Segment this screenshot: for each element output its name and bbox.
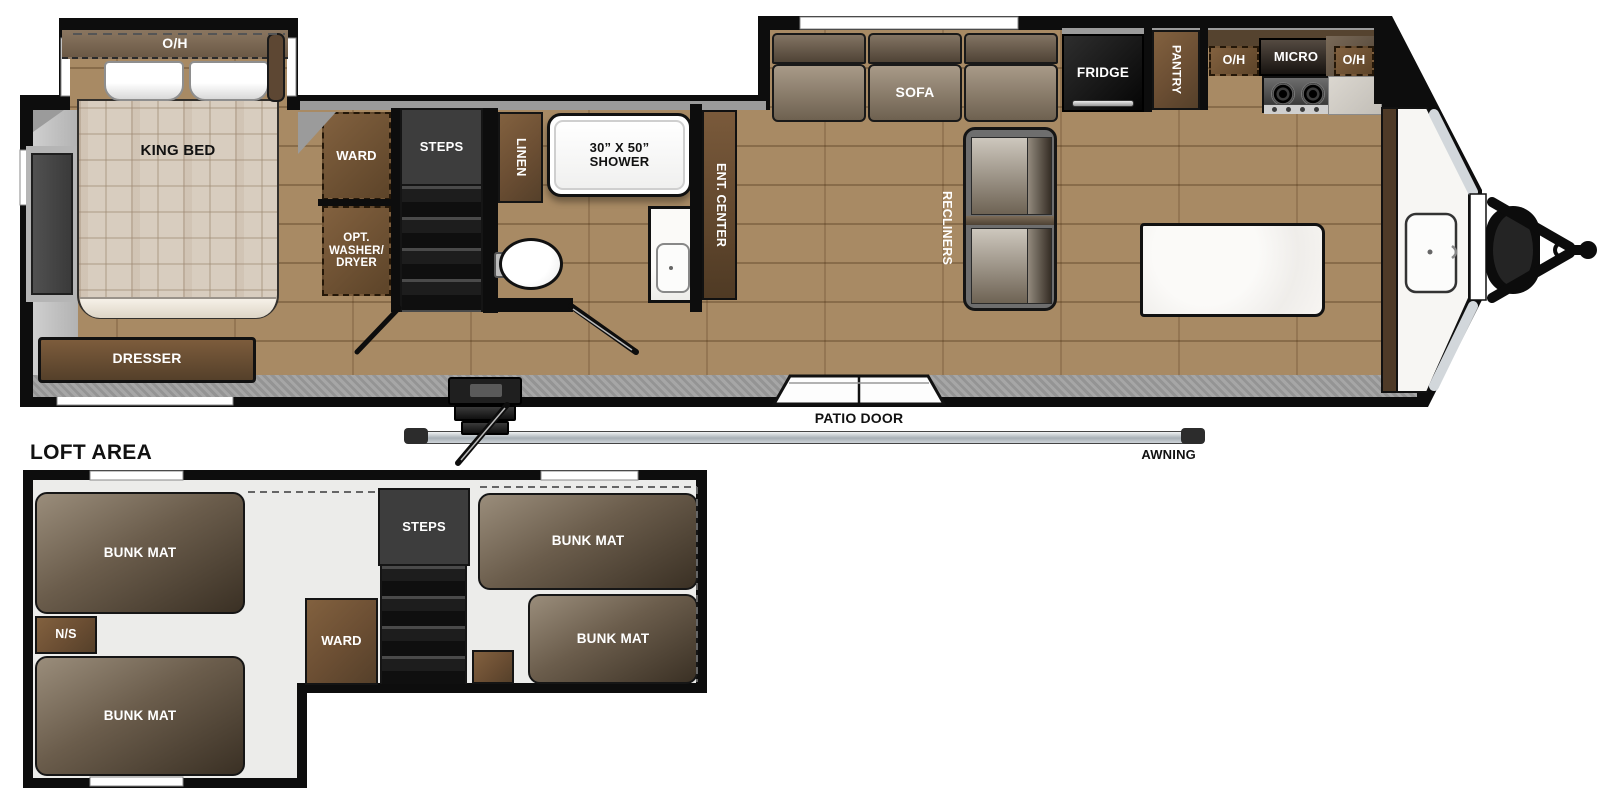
awning-bar [404,431,1205,444]
entry-landing-tread [470,384,502,397]
overhead-left-label: O/H [1209,52,1259,70]
bathroom-wall [483,298,573,312]
staircase-main-treads [400,186,483,312]
bathroom-faucet [669,266,673,270]
wardrobe-loft-label: WARD [305,633,378,650]
awning-cap-right [1181,428,1205,444]
cooktop-knobs [1264,104,1329,114]
tv-cabinet [31,153,73,295]
wardrobe-bedroom-label: WARD [322,148,391,164]
dresser-label: DRESSER [58,350,236,368]
shower-label: 30” X 50” SHOWER [552,138,687,172]
staircase-loft-label: STEPS [378,519,470,535]
fridge-label: FRIDGE [1062,64,1144,82]
wall-front-corner [1374,16,1392,104]
knob [1272,107,1277,112]
fridge-handle [1072,100,1134,107]
toilet [499,238,563,290]
bed-bolster [267,33,285,102]
wall-steps-left [391,108,400,312]
kitchen-island [1140,223,1325,317]
wall-stub-pantry [1200,26,1208,110]
sofa-label: SOFA [868,84,962,102]
loft-area-title: LOFT AREA [30,441,230,465]
recliner-cushion [971,137,1029,215]
king-bed-label: KING BED [108,142,248,160]
pillow [104,61,184,101]
bathroom-sink [656,243,690,293]
sofa-seat [772,64,866,122]
recliners-label: RECLINERS [936,180,956,276]
entry-step [461,421,509,435]
burner [1271,82,1295,106]
entry-landing [448,377,522,405]
recliner-cushion [971,228,1029,304]
knob [1314,107,1319,112]
bunk-mat-2-label: BUNK MAT [35,707,245,725]
recliners [963,127,1057,311]
king-bed [77,99,279,319]
recliner-back [1027,137,1052,215]
washer-dryer-label: OPT. WASHER/ DRYER [322,230,391,272]
patio-door-label: PATIO DOOR [799,410,919,427]
recliner-back [1027,228,1052,304]
wall-steps-right [483,108,498,313]
overhead-bedroom-label: O/H [120,34,230,54]
bunk-mat-3-label: BUNK MAT [478,532,698,550]
staircase-main-label: STEPS [400,139,483,155]
bunk-mat-1-label: BUNK MAT [35,544,245,562]
microwave-label: MICRO [1259,48,1333,66]
sofa-back [868,33,962,64]
knob [1286,107,1291,112]
pillow [189,61,269,101]
knob [1300,107,1305,112]
sofa-back [964,33,1058,64]
sofa-seat [964,64,1058,122]
rv-floorplan-page: { "plan": { "bedroom": { "overhead": "O/… [0,0,1600,808]
pantry-label: PANTRY [1162,36,1190,104]
entry-step [454,405,516,421]
sofa-back [772,33,866,64]
wall-ent-center [690,104,702,312]
bunk-mat-4-label: BUNK MAT [528,630,698,648]
recliner-divider [966,216,1054,225]
king-bed-foot [80,297,276,318]
nightstand-label: N/S [35,626,97,644]
wall-stub-fridge [1144,26,1152,112]
staircase-loft-treads [380,566,467,684]
awning-cap-left [404,428,428,444]
linen-label: LINEN [505,120,535,195]
awning-label: AWNING [1110,447,1196,463]
ent-center-label: ENT. CENTER [708,120,732,290]
overhead-right-label: O/H [1334,52,1374,70]
storage-cabinet-loft [472,650,514,684]
burner [1301,82,1325,106]
wall-stub [318,199,391,206]
